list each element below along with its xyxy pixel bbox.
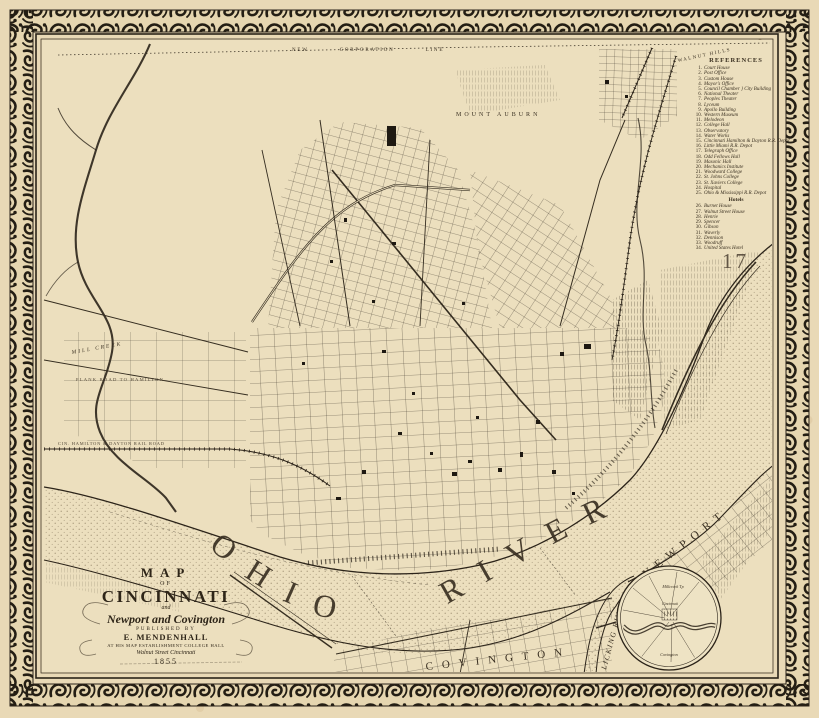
reference-number: 25. xyxy=(694,191,702,196)
border-left xyxy=(10,10,33,706)
cartouche-year: 1855 xyxy=(72,658,260,666)
plank-road-label: PLANK ROAD TO HAMILTON xyxy=(76,377,164,382)
inset-covington-label: Covington xyxy=(660,652,677,657)
antique-map-page: OHIO RIVER LICKING RIVER NEWPORT COVINGT… xyxy=(0,0,819,718)
cartouche-of-word: OF xyxy=(72,581,260,587)
cartouche-title: CINCINNATI xyxy=(72,588,260,606)
cartouche-subtitle: Newport and Covington xyxy=(72,613,260,625)
hotel-number: 34. xyxy=(694,246,702,251)
inset-millcreek-label: Millcreek Tp xyxy=(661,584,683,589)
vicinity-inset: Millcreek Tp Cincinnati Covington xyxy=(617,566,721,670)
hotel-item: 34. United States Hotel xyxy=(694,246,778,251)
reservoir-block xyxy=(387,126,396,146)
cartouche-address-line1: AT HIS MAP ESTABLISHMENT COLLEGE HALL xyxy=(72,644,260,649)
inset-cincinnati-label: Cincinnati xyxy=(662,602,678,606)
inset-city-block xyxy=(662,609,677,620)
hotels-list: 26. Burnet House 27. Walnut Street House… xyxy=(694,204,778,251)
hotels-subtitle: Hotels xyxy=(694,198,778,203)
cartouche-and-word: and xyxy=(72,605,260,611)
border-right xyxy=(786,10,809,706)
references-title: REFERENCES xyxy=(694,58,778,63)
railroad-label: CIN. HAMILTON & DAYTON RAIL ROAD xyxy=(58,441,165,446)
cartouche-address-line2: Walnut Street Cincinnati xyxy=(72,650,260,656)
cartouche-publisher: E. MENDENHALL xyxy=(72,633,260,642)
corporation-line-label: NEW CORPORATION LINE xyxy=(292,48,444,53)
title-cartouche: MAP OF CINCINNATI and Newport and Coving… xyxy=(72,566,260,666)
border-top xyxy=(10,10,809,32)
references-list: 1. Court House 2. Post Office 3. Custom … xyxy=(694,66,778,196)
reference-label: Ohio & Mississippi R.R. Depot xyxy=(704,191,778,196)
references-panel: REFERENCES 1. Court House 2. Post Office… xyxy=(694,58,778,251)
cartouche-map-word: MAP xyxy=(72,566,260,580)
hotel-label: United States Hotel xyxy=(704,246,778,251)
mount-auburn-label: MOUNT AUBURN xyxy=(456,112,540,118)
reference-item: 25. Ohio & Mississippi R.R. Depot xyxy=(694,191,778,196)
border-bottom xyxy=(10,684,809,706)
plate-number: 17 xyxy=(722,249,749,273)
